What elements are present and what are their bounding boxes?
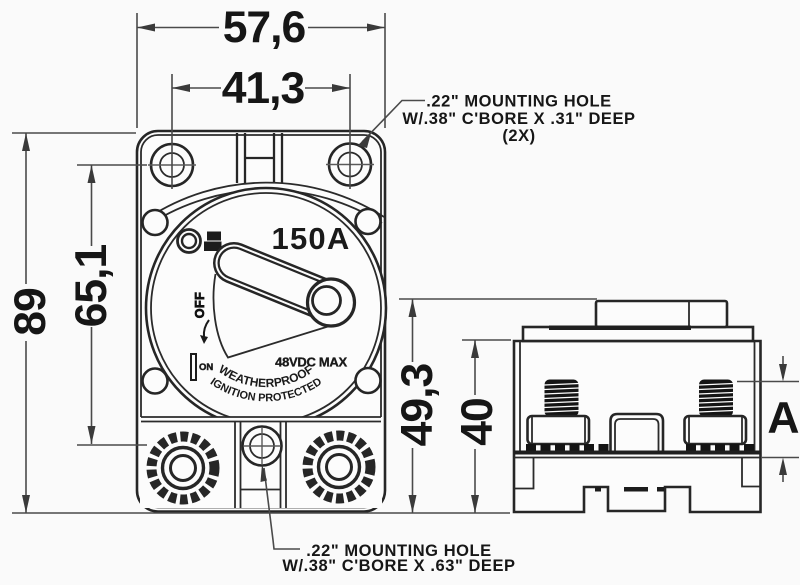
svg-text:41,3: 41,3 [222, 64, 305, 113]
svg-text:(2X): (2X) [502, 127, 535, 145]
svg-text:89: 89 [6, 288, 55, 336]
svg-text:65,1: 65,1 [67, 244, 116, 327]
svg-text:OFF: OFF [193, 292, 207, 319]
svg-text:57,6: 57,6 [223, 3, 306, 52]
svg-text:A: A [767, 394, 798, 443]
svg-text:49,3: 49,3 [393, 363, 442, 446]
svg-text:W/.38" C'BORE X .63" DEEP: W/.38" C'BORE X .63" DEEP [282, 557, 515, 575]
svg-text:ON: ON [199, 362, 213, 373]
svg-text:150A: 150A [272, 221, 351, 256]
svg-text:40: 40 [453, 398, 502, 446]
svg-text:.22" MOUNTING HOLE: .22" MOUNTING HOLE [426, 93, 612, 111]
svg-text:W/.38" C'BORE X .31" DEEP: W/.38" C'BORE X .31" DEEP [402, 110, 635, 128]
